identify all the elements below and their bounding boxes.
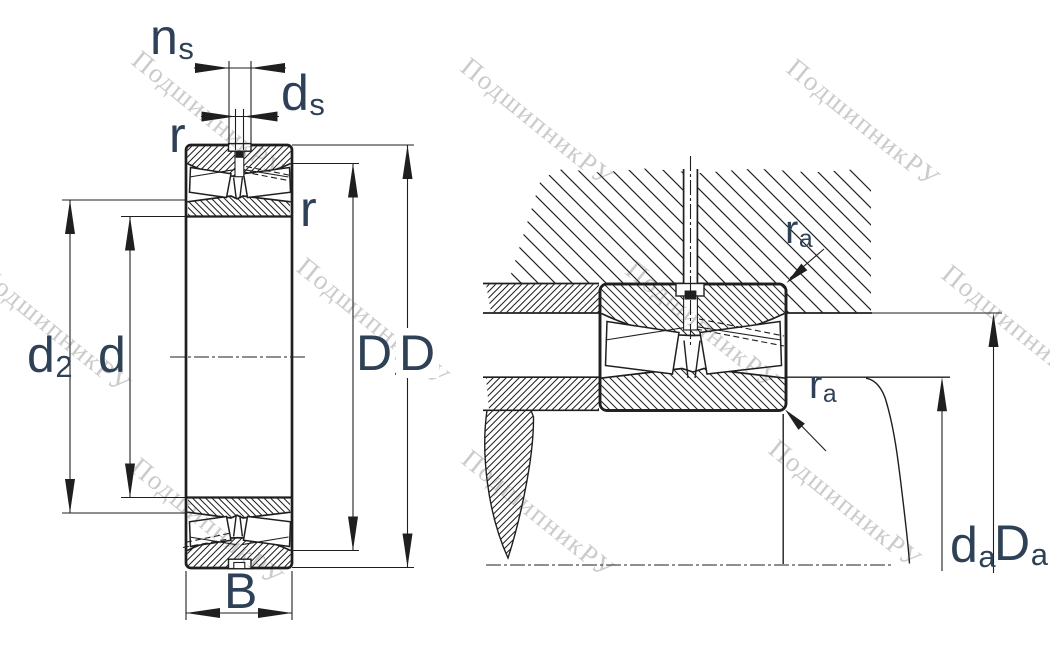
shaft-shoulder-section (486, 378, 599, 410)
label-D: D (396, 328, 439, 378)
label-r-right: r (300, 184, 317, 234)
housing-shoulder-section (486, 284, 599, 312)
label-r-top: r (169, 110, 186, 160)
label-d: d (98, 330, 126, 380)
label-ra-bottom: ra (809, 365, 837, 405)
label-ra-top: ra (785, 210, 813, 250)
label-B: B (224, 566, 258, 616)
label-ns: ns (150, 12, 194, 62)
label-da: da (950, 520, 996, 570)
drawing-canvas: ПодшипникРУ ПодшипникРУ ПодшипникРУ Подш… (0, 0, 1050, 650)
label-d2: d2 (27, 330, 73, 380)
watermark-text: ПодшипникРУ (456, 443, 621, 584)
label-ds: ds (281, 68, 325, 118)
label-Da: Da (994, 518, 1048, 568)
bearing-drawing: ПодшипникРУ ПодшипникРУ ПодшипникРУ Подш… (0, 0, 1050, 650)
watermark-layer: ПодшипникРУ ПодшипникРУ ПодшипникРУ Подш… (0, 44, 1050, 592)
watermark-text: ПодшипникРУ (455, 51, 620, 192)
